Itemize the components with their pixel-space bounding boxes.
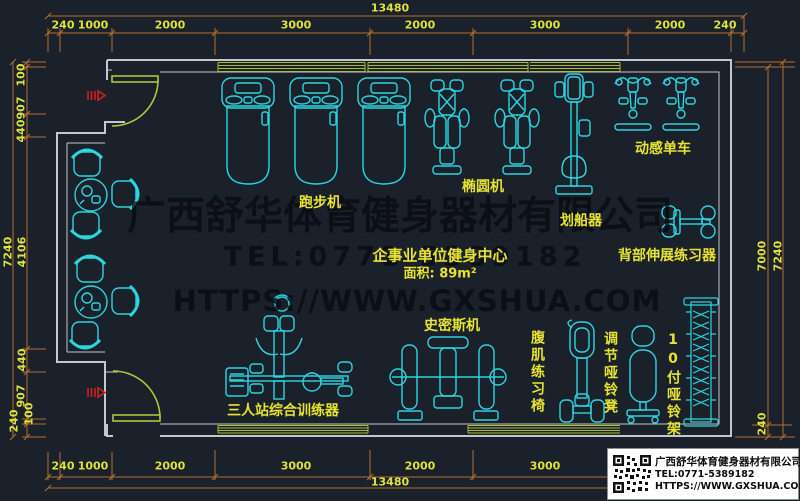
dumbbell-bench [627, 326, 659, 423]
watermark-url: HTTPS://WWW.GXSHUA.COM [173, 284, 662, 318]
label-dumbbell-rack: 10付哑铃架 [663, 332, 683, 438]
dim-right-wall: 240 [756, 413, 769, 436]
dim-bottom-seg: 1000 [78, 460, 109, 473]
dim-top-seg: 2000 [155, 19, 186, 32]
dim-left-seg: 440 [16, 349, 29, 372]
title-block-company: 广西舒华体育健身器材有限公司 [655, 456, 800, 469]
seating-area [70, 150, 138, 348]
title-block-tel: TEL:0771-5389182 [655, 469, 800, 481]
smith-machine [390, 337, 506, 420]
label-back-extension: 背部伸展练习器 [618, 245, 716, 265]
label-dumbbell-bench: 调节哑铃凳 [600, 331, 620, 416]
title-block: 广西舒华体育健身器材有限公司 TEL:0771-5389182 HTTPS://… [607, 448, 799, 500]
dim-right-total: 7240 [772, 241, 785, 272]
dim-top-seg: 2000 [405, 19, 436, 32]
label-ab-chair: 腹肌练习椅 [527, 330, 547, 415]
dim-bottom-total: 13480 [371, 476, 409, 489]
qr-code [612, 454, 652, 494]
label-elliptical: 椭圆机 [462, 176, 504, 196]
dim-bottom-seg: 2000 [155, 460, 186, 473]
ellipticals [425, 80, 539, 174]
treadmills [222, 78, 410, 184]
dim-top-seg: 3000 [281, 19, 312, 32]
dim-left-seg: 4106 [16, 237, 29, 268]
ab-chair [560, 320, 604, 422]
dumbbell-rack [684, 298, 718, 426]
dim-top-seg: 1000 [78, 19, 109, 32]
door-top-left [112, 76, 158, 126]
room-area: 面积: 89m² [403, 263, 476, 282]
dim-right-inner: 7000 [756, 241, 769, 272]
dim-top-seg: 240 [52, 19, 75, 32]
dim-top-seg: 2000 [655, 19, 686, 32]
dim-left-total: 7240 [2, 237, 15, 268]
dim-bottom-seg: 3000 [530, 460, 561, 473]
label-multi-station: 三人站综合训练器 [227, 400, 339, 420]
label-spin-bike: 动感单车 [635, 138, 691, 158]
dim-left-seg: 240 [8, 410, 21, 433]
label-treadmill: 跑步机 [299, 192, 341, 212]
dim-top-total: 13480 [371, 2, 409, 15]
doors [112, 76, 160, 421]
dim-left-seg: 100 [23, 403, 36, 426]
label-rowing: 划船器 [560, 210, 602, 230]
door-bottom-left [113, 371, 160, 421]
dim-top-seg: 240 [714, 19, 737, 32]
entrance-arrow-top [88, 91, 105, 100]
dim-left-seg: 440 [15, 120, 28, 143]
cad-floor-plan: 13480 240 1000 2000 3000 2000 3000 2000 … [0, 0, 800, 501]
label-smith-machine: 史密斯机 [424, 315, 480, 335]
spin-bikes [615, 78, 699, 130]
dim-bottom-seg: 240 [52, 460, 75, 473]
rowing-machine [555, 74, 593, 194]
dim-top-seg: 3000 [530, 19, 561, 32]
dim-bottom-seg: 3000 [281, 460, 312, 473]
title-block-url: HTTPS://WWW.GXSHUA.COM [655, 481, 800, 493]
dim-bottom-seg: 2000 [405, 460, 436, 473]
dim-left-seg: 100 [15, 64, 28, 87]
dim-left-seg: 907 [15, 97, 28, 120]
entrance-arrow-bottom [88, 388, 105, 397]
